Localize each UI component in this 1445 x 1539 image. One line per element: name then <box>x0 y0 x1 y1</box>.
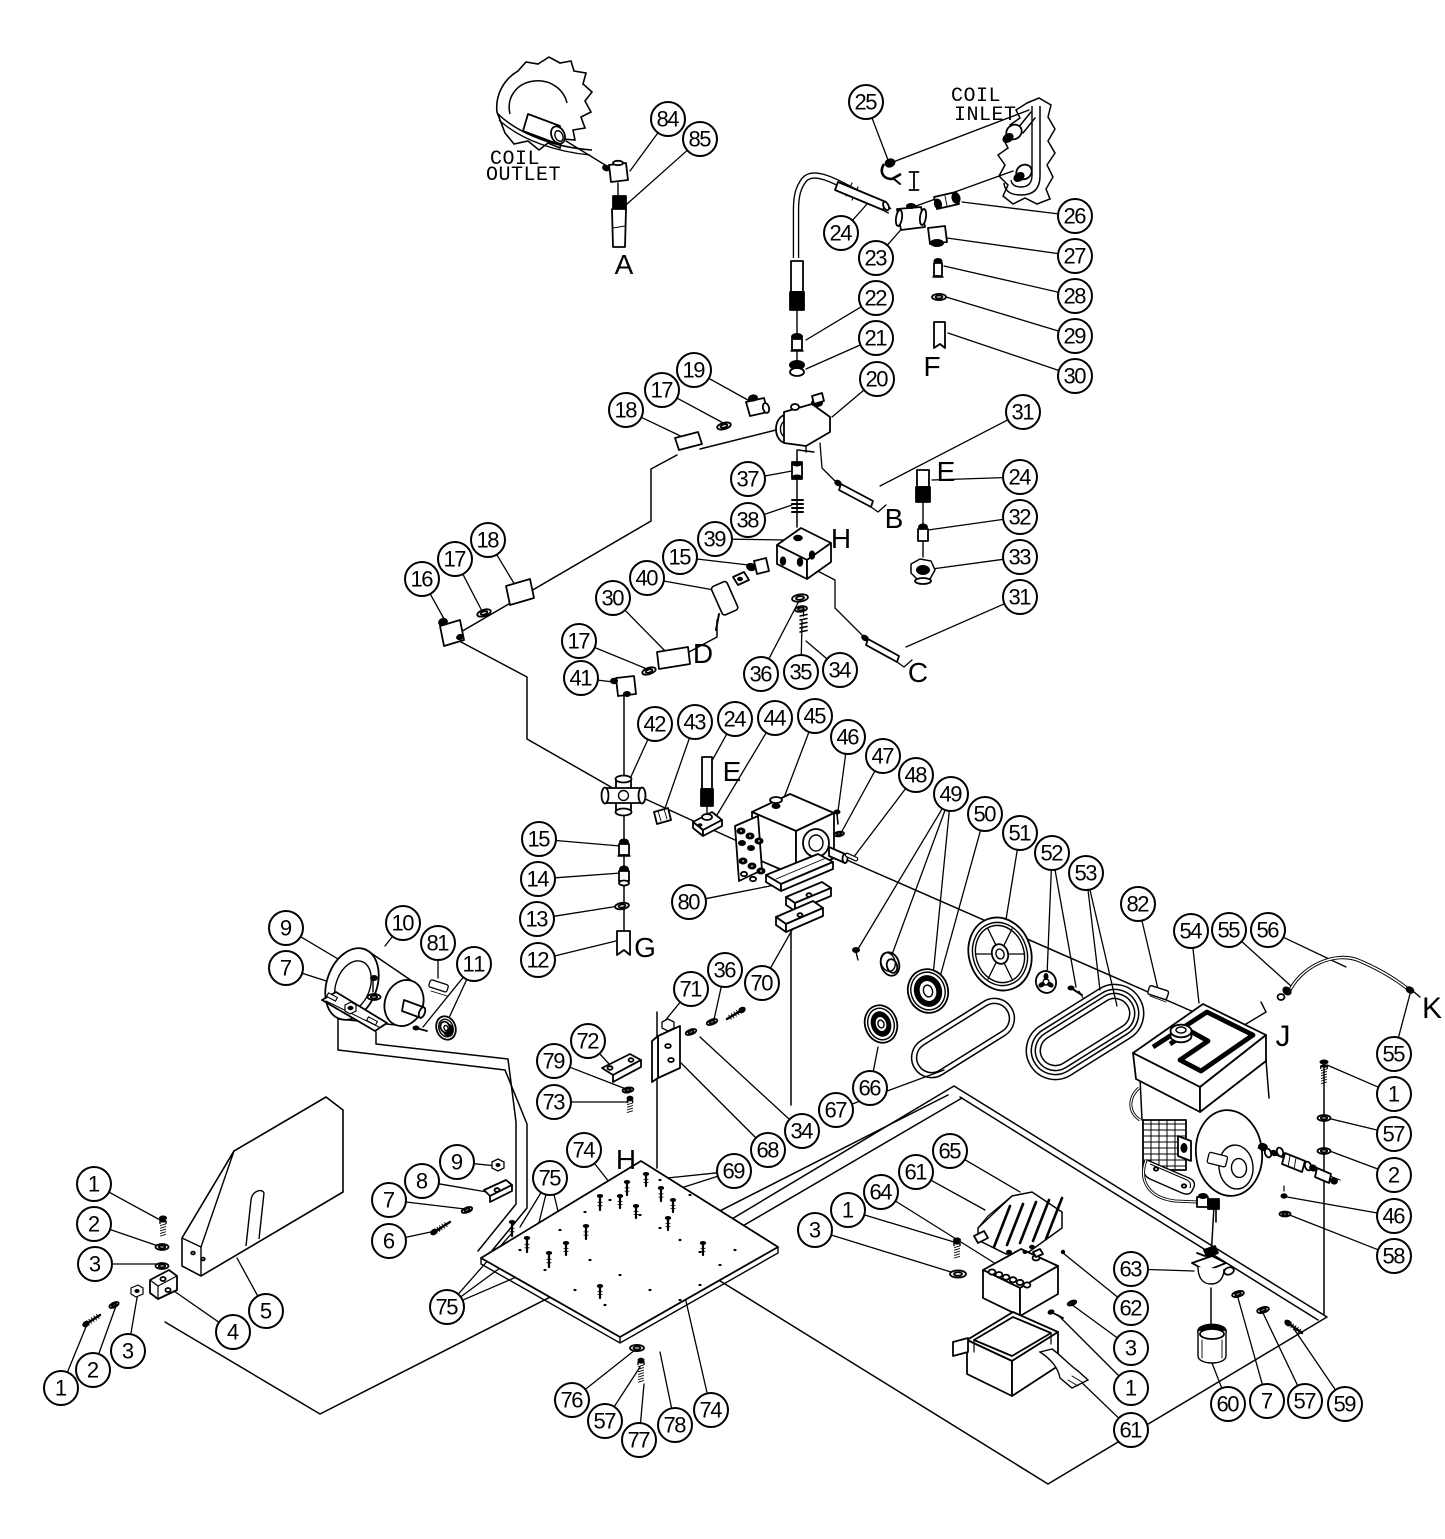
svg-text:57: 57 <box>1383 1122 1406 1147</box>
svg-text:17: 17 <box>568 629 591 654</box>
svg-text:31: 31 <box>1012 400 1035 425</box>
svg-text:12: 12 <box>527 948 550 973</box>
svg-text:E: E <box>937 456 956 487</box>
svg-text:58: 58 <box>1383 1244 1406 1269</box>
svg-text:50: 50 <box>974 802 997 827</box>
svg-text:67: 67 <box>825 1098 848 1123</box>
svg-text:55: 55 <box>1218 918 1241 943</box>
svg-text:26: 26 <box>1064 204 1087 229</box>
svg-text:60: 60 <box>1217 1392 1240 1417</box>
svg-text:32: 32 <box>1009 505 1032 530</box>
svg-text:27: 27 <box>1064 244 1087 269</box>
svg-text:23: 23 <box>865 246 888 271</box>
svg-text:44: 44 <box>764 706 787 731</box>
svg-text:75: 75 <box>436 1295 459 1320</box>
svg-text:H: H <box>616 1144 636 1175</box>
svg-text:38: 38 <box>737 508 760 533</box>
svg-text:74: 74 <box>573 1138 596 1163</box>
svg-text:6: 6 <box>383 1229 395 1254</box>
svg-text:29: 29 <box>1064 324 1087 349</box>
svg-text:55: 55 <box>1383 1042 1406 1067</box>
svg-text:35: 35 <box>790 660 813 685</box>
svg-text:70: 70 <box>751 971 774 996</box>
svg-text:54: 54 <box>1180 919 1203 944</box>
svg-text:63: 63 <box>1120 1257 1143 1282</box>
svg-text:80: 80 <box>678 890 701 915</box>
svg-text:34: 34 <box>791 1119 814 1144</box>
svg-text:64: 64 <box>870 1180 893 1205</box>
svg-text:52: 52 <box>1041 841 1064 866</box>
svg-text:13: 13 <box>526 907 549 932</box>
svg-text:73: 73 <box>543 1090 566 1115</box>
svg-text:18: 18 <box>615 398 638 423</box>
svg-text:A: A <box>615 249 634 280</box>
svg-text:37: 37 <box>737 467 760 492</box>
svg-text:33: 33 <box>1009 545 1032 570</box>
svg-text:21: 21 <box>865 326 888 351</box>
svg-text:C: C <box>908 657 928 688</box>
svg-text:59: 59 <box>1334 1392 1357 1417</box>
svg-text:72: 72 <box>577 1029 600 1054</box>
svg-text:56: 56 <box>1257 918 1280 943</box>
svg-text:39: 39 <box>704 527 727 552</box>
svg-text:1: 1 <box>88 1172 100 1197</box>
svg-text:61: 61 <box>1120 1418 1143 1443</box>
svg-text:24: 24 <box>1009 465 1032 490</box>
svg-text:41: 41 <box>570 666 593 691</box>
svg-text:11: 11 <box>463 952 486 977</box>
svg-text:28: 28 <box>1064 284 1087 309</box>
svg-text:84: 84 <box>657 107 680 132</box>
svg-text:18: 18 <box>477 528 500 553</box>
svg-text:81: 81 <box>427 931 450 956</box>
svg-text:9: 9 <box>280 916 292 941</box>
svg-text:2: 2 <box>88 1212 100 1237</box>
svg-text:62: 62 <box>1120 1296 1143 1321</box>
svg-text:46: 46 <box>1383 1204 1406 1229</box>
svg-text:31: 31 <box>1009 585 1032 610</box>
svg-text:B: B <box>885 503 904 534</box>
svg-text:20: 20 <box>866 367 889 392</box>
svg-text:48: 48 <box>905 763 928 788</box>
svg-text:7: 7 <box>1261 1389 1273 1414</box>
svg-text:82: 82 <box>1127 892 1150 917</box>
svg-text:66: 66 <box>859 1076 882 1101</box>
svg-text:49: 49 <box>940 782 963 807</box>
svg-text:7: 7 <box>383 1188 395 1213</box>
svg-text:36: 36 <box>750 662 773 687</box>
svg-text:16: 16 <box>411 567 434 592</box>
svg-text:24: 24 <box>724 707 747 732</box>
svg-text:10: 10 <box>392 911 415 936</box>
svg-text:43: 43 <box>684 710 707 735</box>
svg-text:68: 68 <box>757 1138 780 1163</box>
svg-text:3: 3 <box>809 1218 821 1243</box>
svg-text:19: 19 <box>683 358 706 383</box>
svg-text:36: 36 <box>714 958 737 983</box>
svg-text:15: 15 <box>669 545 692 570</box>
svg-text:14: 14 <box>527 867 550 892</box>
svg-text:71: 71 <box>680 977 703 1002</box>
svg-text:3: 3 <box>1125 1336 1137 1361</box>
svg-text:47: 47 <box>872 744 895 769</box>
svg-text:17: 17 <box>651 378 674 403</box>
svg-text:J: J <box>1276 1020 1291 1053</box>
svg-text:22: 22 <box>865 286 888 311</box>
svg-text:OUTLET: OUTLET <box>486 164 561 187</box>
svg-text:78: 78 <box>664 1413 687 1438</box>
svg-text:3: 3 <box>89 1252 101 1277</box>
svg-text:25: 25 <box>855 90 878 115</box>
svg-text:45: 45 <box>804 704 827 729</box>
svg-text:8: 8 <box>416 1169 428 1194</box>
svg-text:57: 57 <box>594 1409 617 1434</box>
svg-text:53: 53 <box>1075 861 1098 886</box>
svg-text:75: 75 <box>539 1166 562 1191</box>
svg-text:51: 51 <box>1009 821 1032 846</box>
svg-text:2: 2 <box>87 1358 99 1383</box>
svg-text:40: 40 <box>636 566 659 591</box>
svg-text:61: 61 <box>905 1160 928 1185</box>
svg-text:5: 5 <box>260 1299 272 1324</box>
svg-text:G: G <box>634 932 656 963</box>
svg-text:30: 30 <box>602 586 625 611</box>
svg-text:1: 1 <box>55 1376 67 1401</box>
svg-text:65: 65 <box>939 1139 962 1164</box>
svg-text:D: D <box>693 638 713 669</box>
svg-text:79: 79 <box>543 1049 566 1074</box>
svg-text:15: 15 <box>528 827 551 852</box>
svg-text:76: 76 <box>561 1388 584 1413</box>
svg-text:69: 69 <box>723 1159 746 1184</box>
svg-text:42: 42 <box>644 712 667 737</box>
svg-text:1: 1 <box>1388 1082 1400 1107</box>
svg-text:1: 1 <box>1125 1376 1137 1401</box>
svg-text:INLET: INLET <box>954 104 1017 127</box>
svg-text:F: F <box>923 351 940 382</box>
svg-text:24: 24 <box>830 221 853 246</box>
svg-text:17: 17 <box>444 547 467 572</box>
svg-text:77: 77 <box>628 1428 651 1453</box>
svg-text:9: 9 <box>451 1150 463 1175</box>
svg-text:57: 57 <box>1294 1389 1317 1414</box>
svg-text:E: E <box>723 756 742 787</box>
svg-text:1: 1 <box>842 1198 854 1223</box>
svg-text:7: 7 <box>280 956 292 981</box>
svg-text:2: 2 <box>1388 1163 1400 1188</box>
svg-text:4: 4 <box>227 1320 239 1345</box>
svg-text:3: 3 <box>122 1339 134 1364</box>
svg-text:74: 74 <box>700 1398 723 1423</box>
svg-text:46: 46 <box>837 725 860 750</box>
svg-text:30: 30 <box>1064 364 1087 389</box>
svg-text:H: H <box>831 523 851 554</box>
svg-text:K: K <box>1422 992 1442 1025</box>
svg-text:85: 85 <box>689 127 712 152</box>
svg-text:34: 34 <box>829 658 852 683</box>
